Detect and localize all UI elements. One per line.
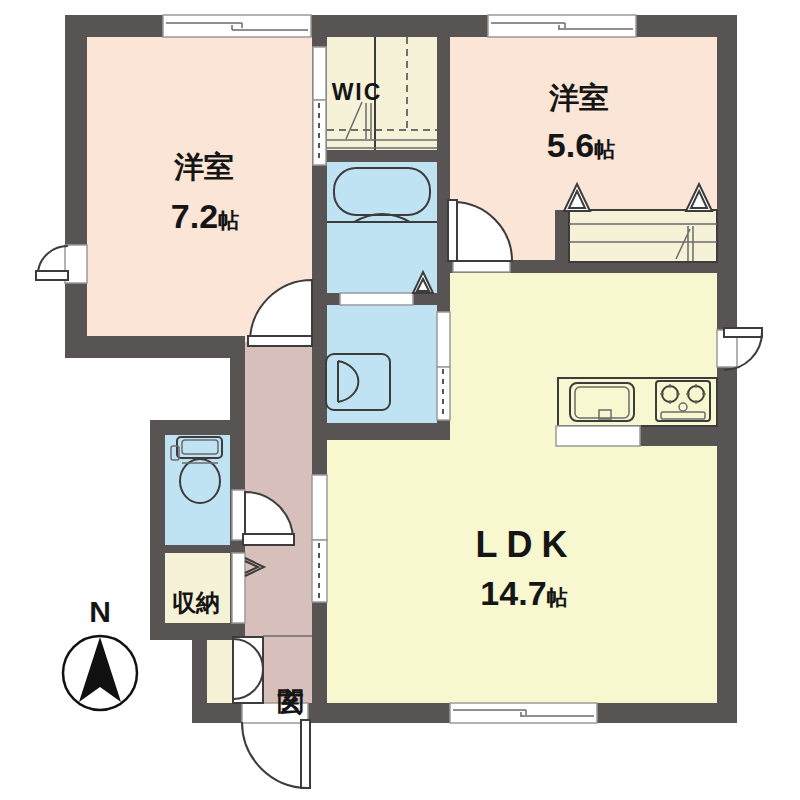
- bedroom2-closet: [569, 210, 717, 262]
- compass-north-label: N: [89, 597, 111, 627]
- casement-window-swing-arc: [38, 246, 68, 271]
- wall-segment: [312, 423, 450, 440]
- hall-ldk-sliding-door-opening: [312, 475, 327, 540]
- entrance-door-leaf: [301, 720, 310, 788]
- kitchen-counter-front: [556, 426, 640, 446]
- hall-ldk-sliding-door-pocket: [312, 540, 327, 602]
- hallway-floor: [245, 342, 312, 637]
- sliding-window: [488, 15, 636, 37]
- ldk-size-unit: 帖: [547, 586, 568, 609]
- toilet-door-leaf: [243, 534, 294, 545]
- bedroom2-door-leaf: [448, 200, 457, 261]
- bedroom1-door-leaf: [248, 336, 312, 346]
- bedroom2-size-value: 5.6: [547, 126, 594, 164]
- ldk-exterior-door-leaf: [724, 328, 762, 337]
- sliding-window: [163, 15, 311, 37]
- wall-segment: [327, 150, 437, 162]
- ldk-size-label: 14.7帖: [480, 576, 567, 610]
- bedroom2-name-label: 洋室: [549, 83, 609, 113]
- wic-sliding-door-opening: [313, 47, 326, 100]
- bedroom1-size-value: 7.2: [171, 197, 218, 235]
- wall-segment: [555, 210, 569, 262]
- wall-segment: [150, 420, 165, 640]
- washroom-sliding-door-opening: [437, 312, 450, 367]
- bedroom2-door-threshold: [453, 261, 510, 272]
- wall-segment: [192, 633, 207, 723]
- ldk-size-value: 14.7: [480, 574, 546, 612]
- bathroom-door-opening: [340, 293, 413, 305]
- entrance-label: 玄関: [278, 666, 304, 672]
- bathroom-floor: [327, 162, 437, 293]
- storage-door-panel: [232, 553, 245, 623]
- casement-window-leaf: [36, 271, 68, 280]
- bedroom1-size-unit: 帖: [218, 209, 239, 232]
- entrance-door-opening: [242, 703, 308, 723]
- wall-segment: [640, 426, 717, 446]
- wall-segment: [65, 15, 87, 358]
- bedroom1-name-label: 洋室: [174, 152, 234, 182]
- bedroom2-size-label: 5.6帖: [547, 128, 615, 162]
- shoe-cabinet-doors: [233, 637, 263, 703]
- storage-label: 収納: [172, 591, 220, 615]
- toilet-door-opening: [232, 490, 245, 540]
- wall-segment: [65, 336, 245, 358]
- washroom-floor: [327, 305, 437, 423]
- shoe-cabinet: [207, 637, 233, 703]
- ldk-name-label: LDK: [476, 527, 577, 563]
- sliding-window: [450, 703, 597, 723]
- floor-plan: 洋室 7.2帖 洋室 5.6帖 WIC LDK 14.7帖 収納 玄関 N: [0, 0, 800, 800]
- bedroom1-size-label: 7.2帖: [171, 199, 239, 233]
- entrance-door-swing-arc: [242, 722, 308, 788]
- wic-label: WIC: [332, 81, 383, 104]
- bedroom2-size-unit: 帖: [594, 138, 615, 161]
- floor-plan-drawing: [0, 0, 800, 800]
- north-compass: [63, 636, 137, 710]
- wall-segment: [165, 545, 232, 553]
